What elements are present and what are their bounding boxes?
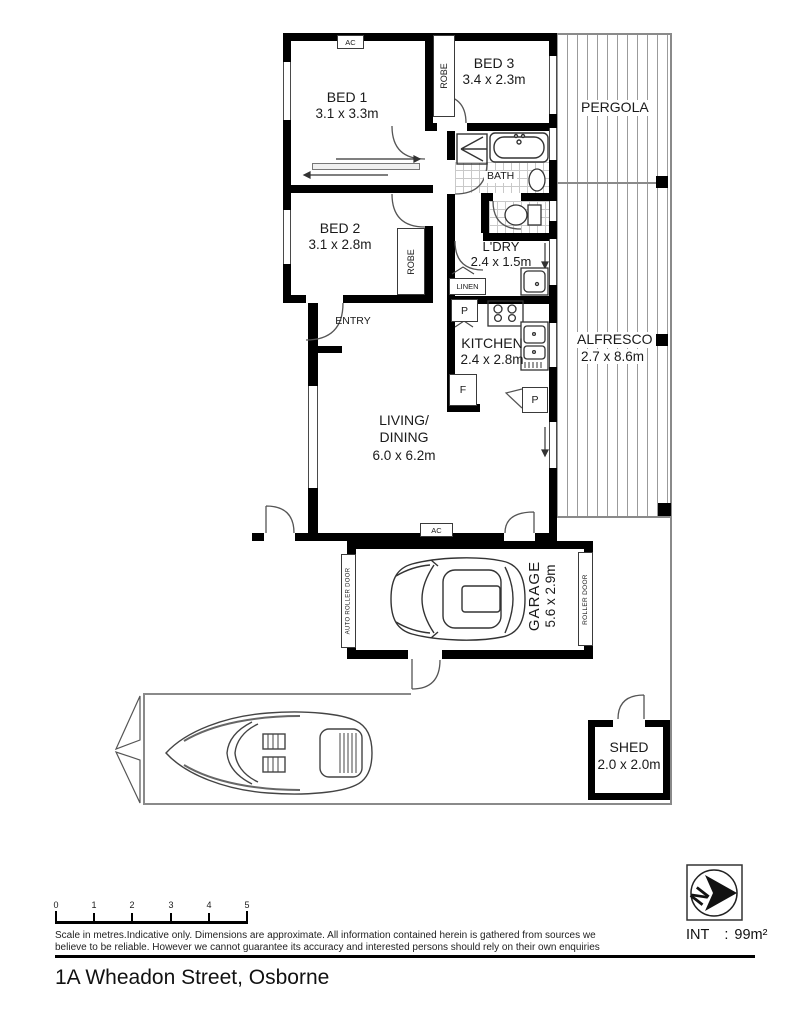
entry-name: ENTRY xyxy=(330,316,376,328)
scale-number: 3 xyxy=(165,900,177,910)
bed1-dims: 3.1 x 3.3m xyxy=(287,106,407,121)
garage-dims: 5.6 x 2.9m xyxy=(543,537,558,655)
bed1-name: BED 1 xyxy=(287,90,407,106)
robe-closet: ROBE xyxy=(397,228,425,295)
car-icon xyxy=(391,558,525,640)
boat-icon xyxy=(166,712,372,794)
post xyxy=(656,176,668,188)
pergola-name: PERGOLA xyxy=(578,100,652,116)
garage-label-block: GARAGE 5.6 x 2.9m xyxy=(526,537,570,655)
scale-number: 0 xyxy=(50,900,62,910)
address: 1A Wheadon Street, Osborne xyxy=(55,966,329,990)
interior-area: INT:99m² xyxy=(686,927,767,943)
bed3-name: BED 3 xyxy=(440,56,548,72)
robe-label: ROBE xyxy=(406,249,416,275)
pantry: P xyxy=(451,299,478,322)
roller-door-label: ROLLER DOOR xyxy=(582,574,589,625)
linen-label: LINEN xyxy=(456,282,478,291)
post xyxy=(658,503,671,516)
ac-unit: AC xyxy=(420,523,453,537)
bathtub-icon xyxy=(490,133,548,162)
alfresco-dims: 2.7 x 8.6m xyxy=(578,349,647,364)
interior-area-value: 99m² xyxy=(734,927,767,943)
pantry-label: P xyxy=(531,394,538,406)
post xyxy=(656,334,668,346)
scale-tick xyxy=(208,913,210,921)
scale-tick xyxy=(170,913,172,921)
auto-roller-door-label: AUTO ROLLER DOOR xyxy=(346,568,352,635)
bed2-name: BED 2 xyxy=(280,221,400,237)
pantry-label: P xyxy=(461,305,468,317)
ac-label: AC xyxy=(431,526,441,535)
interior-area-colon: : xyxy=(724,927,728,943)
scale-baseline xyxy=(55,921,248,924)
scale-tick xyxy=(55,911,57,921)
toilet-icon xyxy=(505,205,541,225)
fridge: F xyxy=(449,374,477,406)
ac-label: AC xyxy=(345,38,355,47)
north-compass: N xyxy=(684,862,746,924)
living-name-2: DINING xyxy=(364,430,444,446)
auto-roller-door: AUTO ROLLER DOOR xyxy=(341,554,356,648)
gate-leaves xyxy=(116,696,140,803)
floor-plan: AC AC ROBE ROBE LINEN P F P AUTO ROLLER … xyxy=(0,0,800,1035)
pantry: P xyxy=(522,387,548,413)
laundry-name: L'DRY xyxy=(470,240,532,255)
laundry-dims: 2.4 x 1.5m xyxy=(463,255,539,270)
roller-door: ROLLER DOOR xyxy=(578,552,593,646)
laundry-tub-icon xyxy=(521,268,548,295)
interior-area-label: INT xyxy=(686,927,709,943)
kitchen-dims: 2.4 x 2.8m xyxy=(452,352,532,367)
garage-name: GARAGE xyxy=(526,537,543,655)
bed2-dims: 3.1 x 2.8m xyxy=(280,237,400,252)
scale-number: 2 xyxy=(126,900,138,910)
cooktop-icon xyxy=(488,301,523,326)
scale-number: 4 xyxy=(203,900,215,910)
shower-icon xyxy=(457,134,487,164)
shed-dims: 2.0 x 2.0m xyxy=(592,757,666,772)
pantry-flap xyxy=(506,389,522,408)
scale-tick xyxy=(93,913,95,921)
basin-icon xyxy=(529,169,545,191)
scale-number: 1 xyxy=(88,900,100,910)
scale-tick xyxy=(131,913,133,921)
linen-cupboard: LINEN xyxy=(449,278,486,295)
scale-tick xyxy=(246,911,248,921)
bath-name: BATH xyxy=(484,171,517,183)
living-name-1: LIVING/ xyxy=(364,413,444,429)
scale-number: 5 xyxy=(241,900,253,910)
footer-rule xyxy=(55,955,755,958)
ac-unit: AC xyxy=(337,35,364,49)
living-dims: 6.0 x 6.2m xyxy=(358,448,450,463)
bed3-dims: 3.4 x 2.3m xyxy=(440,72,548,87)
kitchen-name: KITCHEN xyxy=(452,336,532,352)
disclaimer-line-1: Scale in metres.Indicative only. Dimensi… xyxy=(55,930,596,941)
shed-name: SHED xyxy=(596,740,662,756)
fridge-label: F xyxy=(460,384,466,396)
alfresco-name: ALFRESCO xyxy=(574,332,655,348)
disclaimer-line-2: believe to be reliable. However we canno… xyxy=(55,942,600,953)
